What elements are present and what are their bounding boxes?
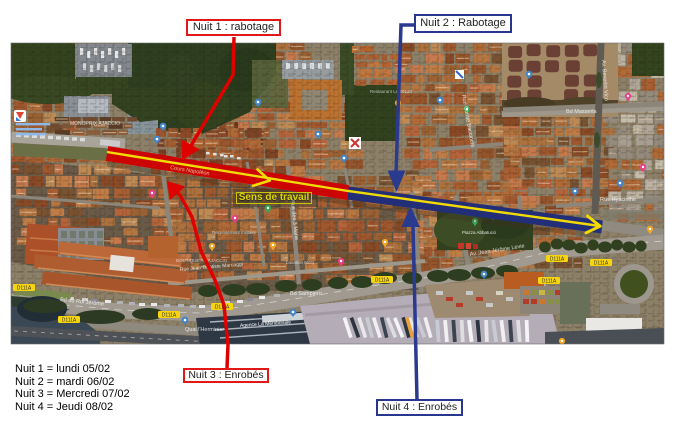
- svg-text:D111A: D111A: [17, 286, 32, 292]
- svg-text:D111A: D111A: [542, 279, 557, 285]
- svg-text:D111A: D111A: [62, 318, 77, 324]
- svg-text:Quai l'Herminier: Quai l'Herminier: [185, 327, 224, 333]
- svg-text:Recensement militaire: Recensement militaire: [212, 230, 257, 235]
- svg-text:Bd Sampiero: Bd Sampiero: [290, 291, 322, 297]
- svg-text:MONOPRIX AJACCIO: MONOPRIX AJACCIO: [70, 121, 120, 127]
- svg-text:Bd Masseria: Bd Masseria: [566, 109, 598, 115]
- svg-text:Location Moto: Location Moto: [286, 260, 315, 265]
- svg-text:Rue Hyacinthe: Rue Hyacinthe: [600, 197, 636, 203]
- svg-text:D111A: D111A: [594, 261, 609, 267]
- svg-text:D111A: D111A: [550, 257, 565, 263]
- svg-text:Piazza Abbatucci: Piazza Abbatucci: [462, 230, 496, 235]
- svg-text:BOUTIQUE AC AJACCIO: BOUTIQUE AC AJACCIO: [176, 258, 228, 263]
- svg-text:Restaurant Le 20123: Restaurant Le 20123: [370, 89, 413, 94]
- svg-text:D111A: D111A: [162, 313, 177, 319]
- svg-text:D111A: D111A: [375, 278, 390, 284]
